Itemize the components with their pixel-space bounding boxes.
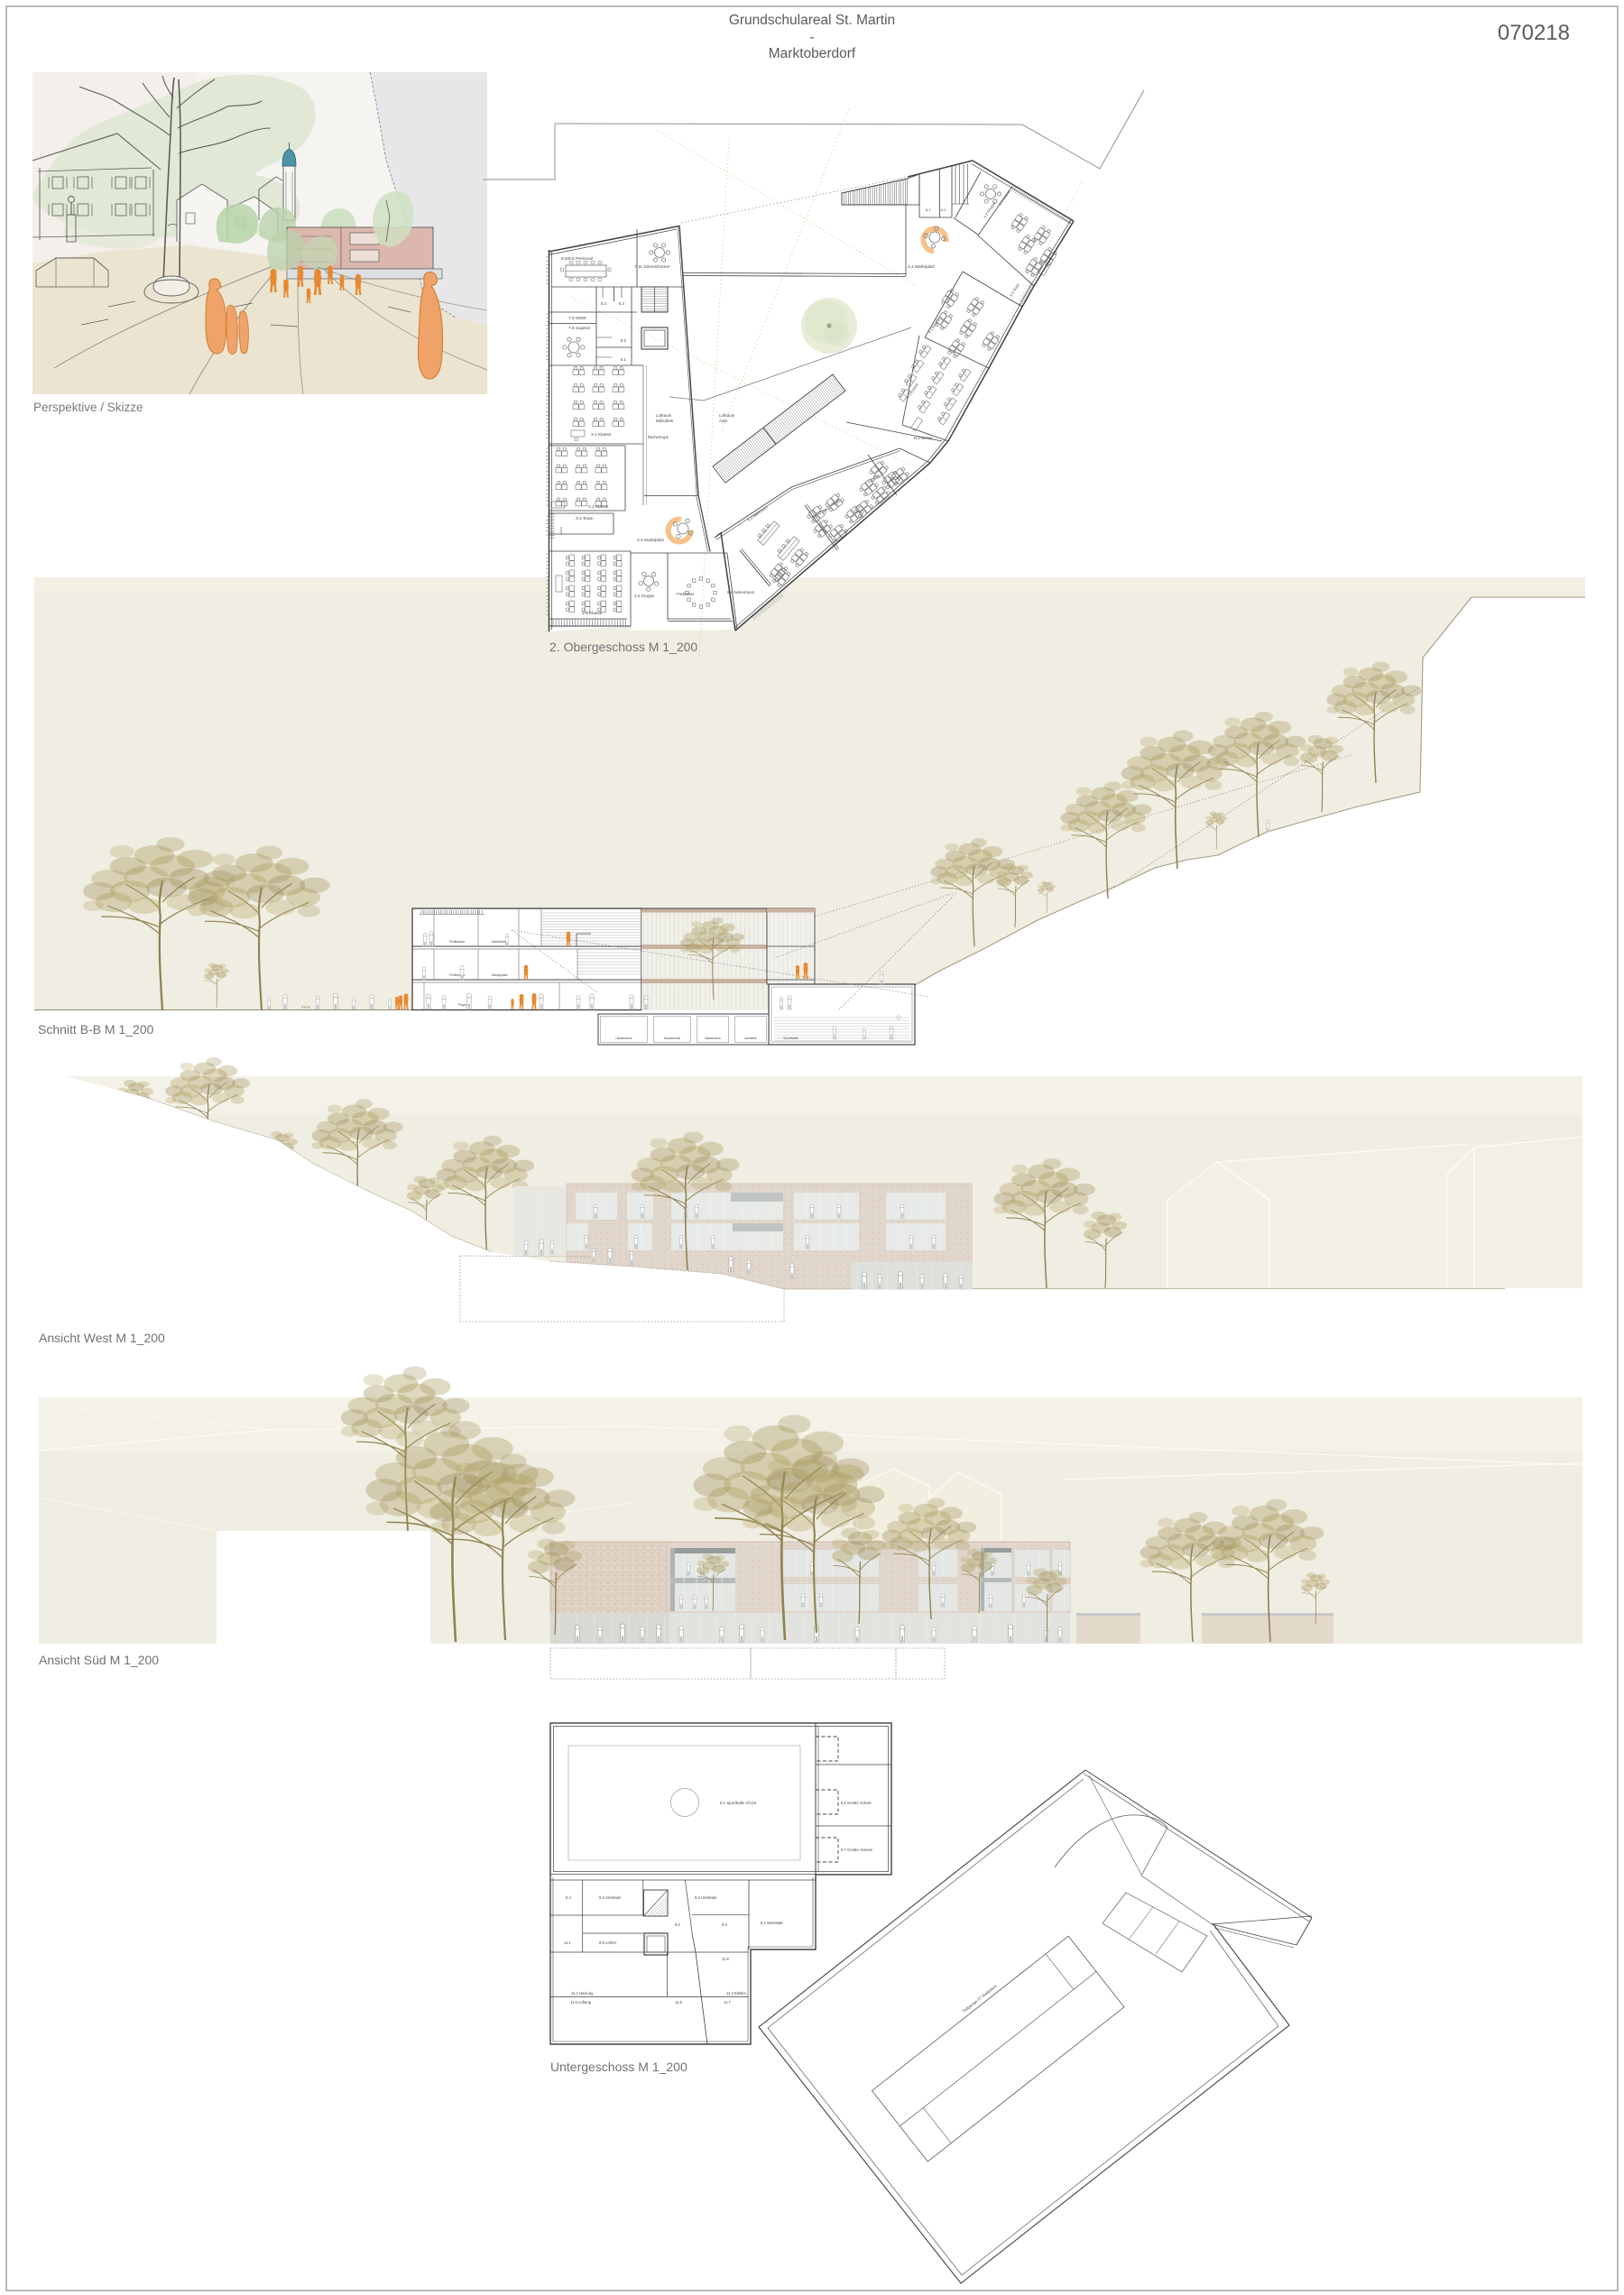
svg-text:3.1 Klasse: 3.1 Klasse bbox=[591, 432, 612, 438]
svg-text:9.2: 9.2 bbox=[675, 1922, 680, 1927]
svg-text:9.5 Lehrer: 9.5 Lehrer bbox=[599, 1940, 617, 1945]
svg-text:9.4: 9.4 bbox=[566, 1895, 571, 1900]
svg-text:11.2 Heizung: 11.2 Heizung bbox=[571, 1991, 594, 1995]
svg-text:3.3 Team: 3.3 Team bbox=[576, 516, 594, 521]
svg-text:Waschraum: Waschraum bbox=[705, 1037, 721, 1040]
svg-text:Marktplatz: Marktplatz bbox=[492, 940, 508, 944]
svg-text:11.5 Lüftung: 11.5 Lüftung bbox=[570, 2000, 592, 2005]
svg-text:9.6 Geräte Schule: 9.6 Geräte Schule bbox=[841, 1801, 872, 1805]
svg-text:3.4 Marktplatz: 3.4 Marktplatz bbox=[637, 538, 665, 543]
svg-text:8.2: 8.2 bbox=[621, 338, 626, 343]
svg-text:Haustechnik: Haustechnik bbox=[615, 1037, 632, 1040]
svg-text:Freiklasse: Freiklasse bbox=[449, 940, 465, 944]
svg-text:Perspektive / Skizze: Perspektive / Skizze bbox=[33, 401, 143, 414]
svg-text:5.4 Nebenraum: 5.4 Nebenraum bbox=[727, 590, 755, 594]
svg-text:Marktplatz: Marktplatz bbox=[492, 973, 508, 977]
svg-text:Luftraum: Luftraum bbox=[656, 413, 672, 418]
svg-text:Freiklasse: Freiklasse bbox=[677, 592, 695, 596]
svg-text:11.6: 11.6 bbox=[722, 1957, 730, 1961]
svg-text:11.1: 11.1 bbox=[564, 1940, 572, 1945]
svg-text:Sporthalle: Sporthalle bbox=[783, 1037, 798, 1040]
svg-text:Ansicht West M 1_200: Ansicht West M 1_200 bbox=[39, 1331, 165, 1345]
svg-text:Bibliothek: Bibliothek bbox=[656, 419, 674, 423]
svg-text:8.2: 8.2 bbox=[941, 207, 946, 212]
svg-text:3.2 Gruppe: 3.2 Gruppe bbox=[634, 594, 655, 598]
svg-text:8.1: 8.1 bbox=[926, 207, 931, 212]
svg-text:9.1 Sporthalle 27x15: 9.1 Sporthalle 27x15 bbox=[720, 1801, 757, 1805]
svg-text:Ansicht Süd M 1_200: Ansicht Süd M 1_200 bbox=[39, 1653, 159, 1667]
svg-text:Bücherregal: Bücherregal bbox=[648, 435, 669, 439]
svg-text:Aula: Aula bbox=[719, 419, 727, 423]
svg-text:4.4 Marktplatz: 4.4 Marktplatz bbox=[908, 264, 936, 270]
svg-text:7.11 Dienstzimmer: 7.11 Dienstzimmer bbox=[634, 264, 670, 270]
svg-text:9.4: 9.4 bbox=[722, 1922, 727, 1927]
svg-text:3.1 Klasse: 3.1 Klasse bbox=[588, 504, 609, 510]
svg-text:8.3: 8.3 bbox=[619, 301, 624, 306]
svg-text:-: - bbox=[809, 30, 814, 45]
svg-text:Grundschulareal St. Martin: Grundschulareal St. Martin bbox=[729, 13, 895, 28]
svg-text:7.9 SMW: 7.9 SMW bbox=[568, 316, 586, 321]
svg-text:11.7: 11.7 bbox=[724, 2000, 732, 2005]
svg-text:7.8 Jugend: 7.8 Jugend bbox=[568, 326, 590, 331]
svg-text:8.5/8.6 Personal: 8.5/8.6 Personal bbox=[561, 256, 593, 262]
svg-text:11.3 Server: 11.3 Server bbox=[913, 436, 933, 440]
svg-text:Marktoberdorf: Marktoberdorf bbox=[769, 46, 856, 61]
svg-text:Haustechnik: Haustechnik bbox=[664, 1037, 680, 1040]
svg-text:2. Obergeschoss M 1_200: 2. Obergeschoss M 1_200 bbox=[549, 640, 697, 654]
svg-text:9.3 Umkleide: 9.3 Umkleide bbox=[599, 1895, 622, 1900]
svg-text:Luftraum: Luftraum bbox=[719, 413, 735, 418]
svg-text:8.1: 8.1 bbox=[621, 357, 626, 362]
svg-text:Foyer: Foyer bbox=[458, 1003, 467, 1007]
svg-text:9.7 Geräte Vereine: 9.7 Geräte Vereine bbox=[841, 1848, 873, 1852]
svg-text:Pause: Pause bbox=[301, 1006, 310, 1009]
svg-text:8.4 Werkstatt: 8.4 Werkstatt bbox=[761, 1921, 783, 1925]
svg-text:3.1 Klasse: 3.1 Klasse bbox=[582, 611, 603, 616]
svg-text:070218: 070218 bbox=[1498, 21, 1570, 45]
svg-text:9.3 Umkleide: 9.3 Umkleide bbox=[695, 1895, 717, 1900]
svg-text:11.4 Elektro: 11.4 Elektro bbox=[726, 1991, 747, 1995]
svg-text:8.3: 8.3 bbox=[601, 301, 606, 306]
svg-text:Umkleide: Umkleide bbox=[744, 1037, 757, 1040]
svg-text:11.8: 11.8 bbox=[675, 2000, 683, 2005]
svg-text:Schnitt B-B M 1_200: Schnitt B-B M 1_200 bbox=[38, 1022, 154, 1037]
svg-text:Untergeschoss M 1_200: Untergeschoss M 1_200 bbox=[550, 2060, 687, 2074]
